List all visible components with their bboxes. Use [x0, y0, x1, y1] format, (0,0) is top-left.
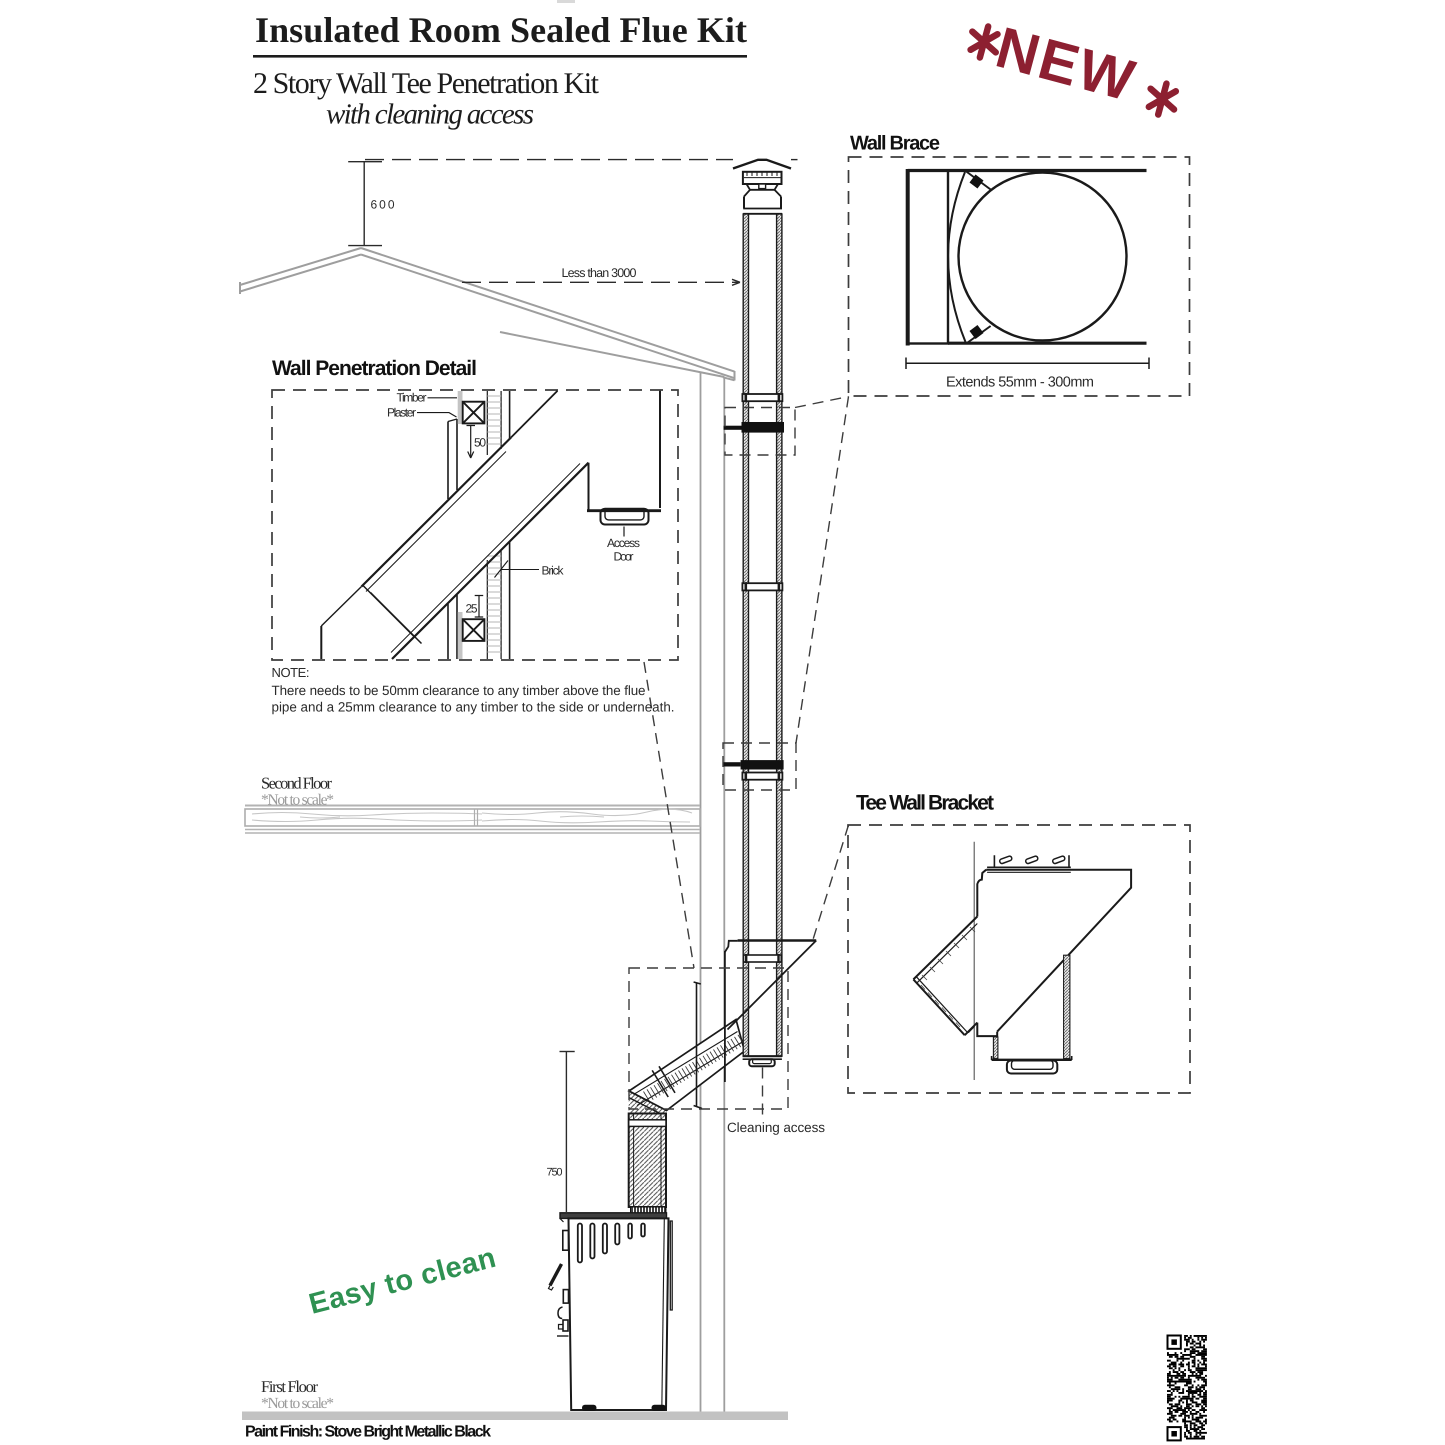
svg-text:pipe and a 25mm clearance to a: pipe and a 25mm clearance to any timber … — [272, 700, 675, 715]
svg-text:Second Floor: Second Floor — [261, 774, 333, 793]
svg-text:Tee Wall Bracket: Tee Wall Bracket — [856, 792, 994, 815]
svg-text:Insulated Room Sealed Flue Kit: Insulated Room Sealed Flue Kit — [255, 10, 747, 50]
svg-text:25: 25 — [466, 602, 478, 616]
svg-text:Extends 55mm - 300mm: Extends 55mm - 300mm — [946, 375, 1094, 391]
svg-text:Timber: Timber — [397, 391, 427, 405]
svg-text:*Not to scale*: *Not to scale* — [261, 1395, 334, 1412]
svg-text:Wall Brace: Wall Brace — [850, 133, 940, 155]
svg-text:Brick: Brick — [542, 564, 565, 578]
svg-text:There needs to be 50mm clearan: There needs to be 50mm clearance to any … — [272, 683, 646, 698]
svg-text:with cleaning access: with cleaning access — [326, 99, 534, 131]
svg-text:Wall Penetration Detail: Wall Penetration Detail — [272, 357, 477, 380]
svg-text:2 Story Wall Tee Penetration K: 2 Story Wall Tee Penetration Kit — [253, 67, 600, 100]
svg-text:600: 600 — [371, 198, 395, 212]
svg-text:Less than 3000: Less than 3000 — [562, 266, 637, 280]
svg-text:Access: Access — [607, 536, 640, 550]
svg-text:Door: Door — [614, 550, 634, 564]
svg-text:NEW: NEW — [989, 15, 1142, 114]
svg-text:Cleaning access: Cleaning access — [727, 1120, 825, 1135]
svg-text:Paint Finish: Stove Bright Met: Paint Finish: Stove Bright Metallic Blac… — [245, 1424, 491, 1441]
svg-text:First Floor: First Floor — [261, 1377, 319, 1396]
svg-text:750: 750 — [547, 1167, 563, 1179]
svg-text:NOTE:: NOTE: — [272, 665, 310, 680]
svg-text:50: 50 — [474, 436, 486, 450]
svg-text:Easy to clean: Easy to clean — [306, 1242, 500, 1321]
svg-text:*Not to scale*: *Not to scale* — [261, 792, 334, 809]
svg-text:Plaster: Plaster — [387, 406, 416, 420]
